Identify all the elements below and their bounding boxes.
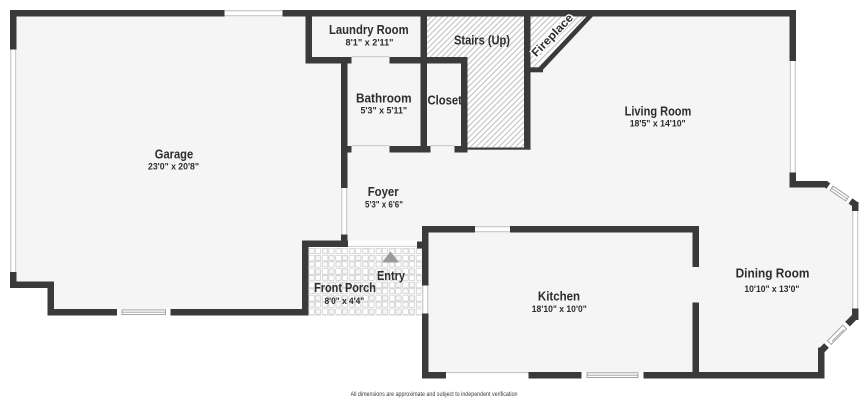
svg-text:Laundry Room: Laundry Room (329, 23, 409, 37)
svg-text:Living Room: Living Room (625, 104, 692, 118)
svg-text:Stairs (Up): Stairs (Up) (454, 34, 510, 48)
svg-text:23'0" x 20'8": 23'0" x 20'8" (148, 161, 199, 172)
svg-text:18'10" x 10'0": 18'10" x 10'0" (532, 304, 587, 315)
svg-text:5'3" x 6'6": 5'3" x 6'6" (365, 199, 403, 210)
svg-text:Closet: Closet (427, 94, 462, 108)
svg-text:10'10" x 13'0": 10'10" x 13'0" (744, 284, 799, 295)
svg-text:8'1" x 2'11": 8'1" x 2'11" (346, 37, 394, 48)
svg-text:Bathroom: Bathroom (356, 91, 412, 105)
svg-text:8'0" x 4'4": 8'0" x 4'4" (325, 296, 365, 307)
svg-text:Entry: Entry (377, 269, 405, 283)
svg-text:18'5" x 14'10": 18'5" x 14'10" (630, 119, 686, 130)
svg-text:5'3" x 5'11": 5'3" x 5'11" (361, 106, 408, 117)
svg-text:Foyer: Foyer (368, 185, 399, 199)
svg-text:Front Porch: Front Porch (314, 281, 376, 295)
svg-text:Kitchen: Kitchen (538, 289, 580, 303)
svg-text:Dining Room: Dining Room (736, 267, 810, 281)
svg-text:All dimensions are approximate: All dimensions are approximate and subje… (351, 391, 518, 398)
svg-text:Garage: Garage (155, 147, 193, 161)
